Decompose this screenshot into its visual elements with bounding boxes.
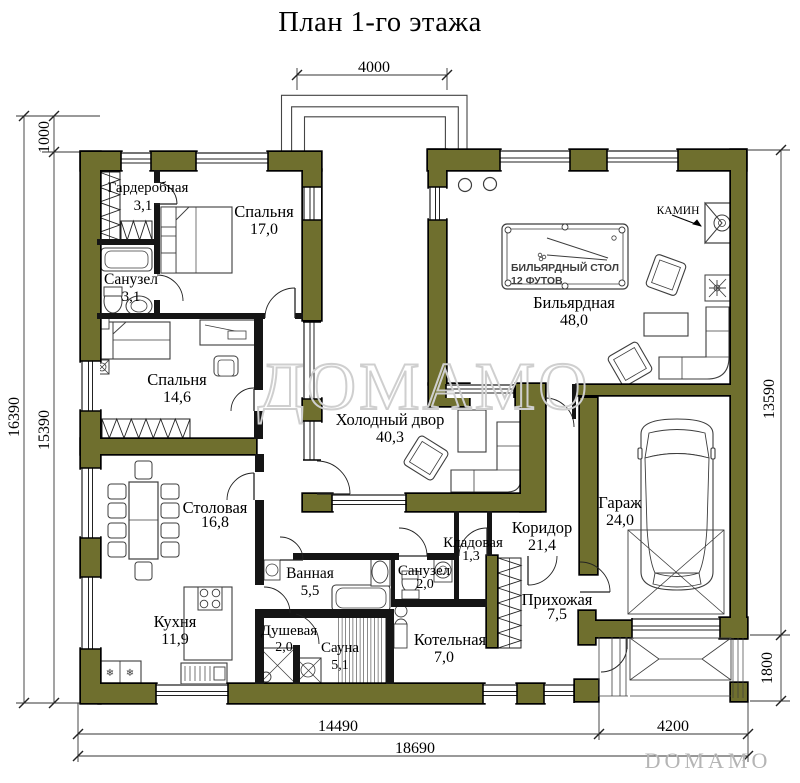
svg-text:Душевая: Душевая: [261, 623, 317, 639]
svg-text:DOMAMO: DOMAMO: [645, 748, 772, 773]
svg-text:❄: ❄: [126, 668, 134, 679]
svg-text:40,3: 40,3: [376, 429, 404, 446]
svg-text:Спальня: Спальня: [234, 202, 294, 221]
svg-text:17,0: 17,0: [250, 221, 278, 238]
svg-text:4000: 4000: [358, 59, 390, 76]
svg-text:❄: ❄: [106, 668, 114, 679]
svg-text:Гардеробная: Гардеробная: [108, 180, 189, 196]
svg-text:Спальня: Спальня: [147, 370, 207, 389]
svg-text:18690: 18690: [395, 740, 435, 757]
svg-text:5,1: 5,1: [331, 658, 349, 673]
svg-text:КАМИН: КАМИН: [657, 205, 700, 217]
svg-text:16,8: 16,8: [201, 514, 229, 531]
svg-text:3,1: 3,1: [134, 198, 153, 214]
svg-text:Санузел: Санузел: [104, 271, 158, 288]
svg-text:12 ФУТОВ: 12 ФУТОВ: [511, 275, 563, 287]
svg-text:1000: 1000: [36, 121, 53, 153]
svg-text:14,6: 14,6: [163, 389, 191, 406]
svg-text:Котельная: Котельная: [414, 630, 487, 649]
svg-text:16390: 16390: [6, 397, 23, 437]
svg-text:Бильярдная: Бильярдная: [533, 293, 615, 312]
svg-text:1800: 1800: [759, 652, 776, 684]
svg-text:14490: 14490: [318, 718, 358, 735]
svg-text:5,5: 5,5: [301, 583, 320, 599]
svg-text:Коридор: Коридор: [512, 518, 572, 537]
svg-text:1,3: 1,3: [462, 549, 480, 564]
svg-text:13590: 13590: [761, 379, 778, 419]
svg-text:Сауна: Сауна: [321, 640, 359, 656]
svg-text:24,0: 24,0: [606, 512, 634, 529]
svg-text:Ванная: Ванная: [286, 565, 334, 582]
svg-text:План 1-го этажа: План 1-го этажа: [278, 7, 481, 38]
svg-text:21,4: 21,4: [528, 537, 556, 554]
svg-text:7,5: 7,5: [547, 606, 567, 623]
svg-text:3,1: 3,1: [122, 289, 141, 305]
svg-text:11,9: 11,9: [161, 631, 188, 648]
svg-text:2,0: 2,0: [275, 640, 293, 655]
svg-text:2,0: 2,0: [416, 577, 434, 592]
svg-text:Кухня: Кухня: [154, 612, 197, 631]
svg-text:Гараж: Гараж: [598, 493, 642, 512]
svg-text:7,0: 7,0: [434, 649, 454, 666]
svg-text:4200: 4200: [657, 718, 689, 735]
svg-text:БИЛЬЯРДНЫЙ СТОЛ: БИЛЬЯРДНЫЙ СТОЛ: [511, 261, 619, 274]
svg-text:ДОМАМО: ДОМАМО: [258, 348, 591, 424]
svg-text:15390: 15390: [36, 410, 53, 450]
svg-text:48,0: 48,0: [560, 312, 588, 329]
